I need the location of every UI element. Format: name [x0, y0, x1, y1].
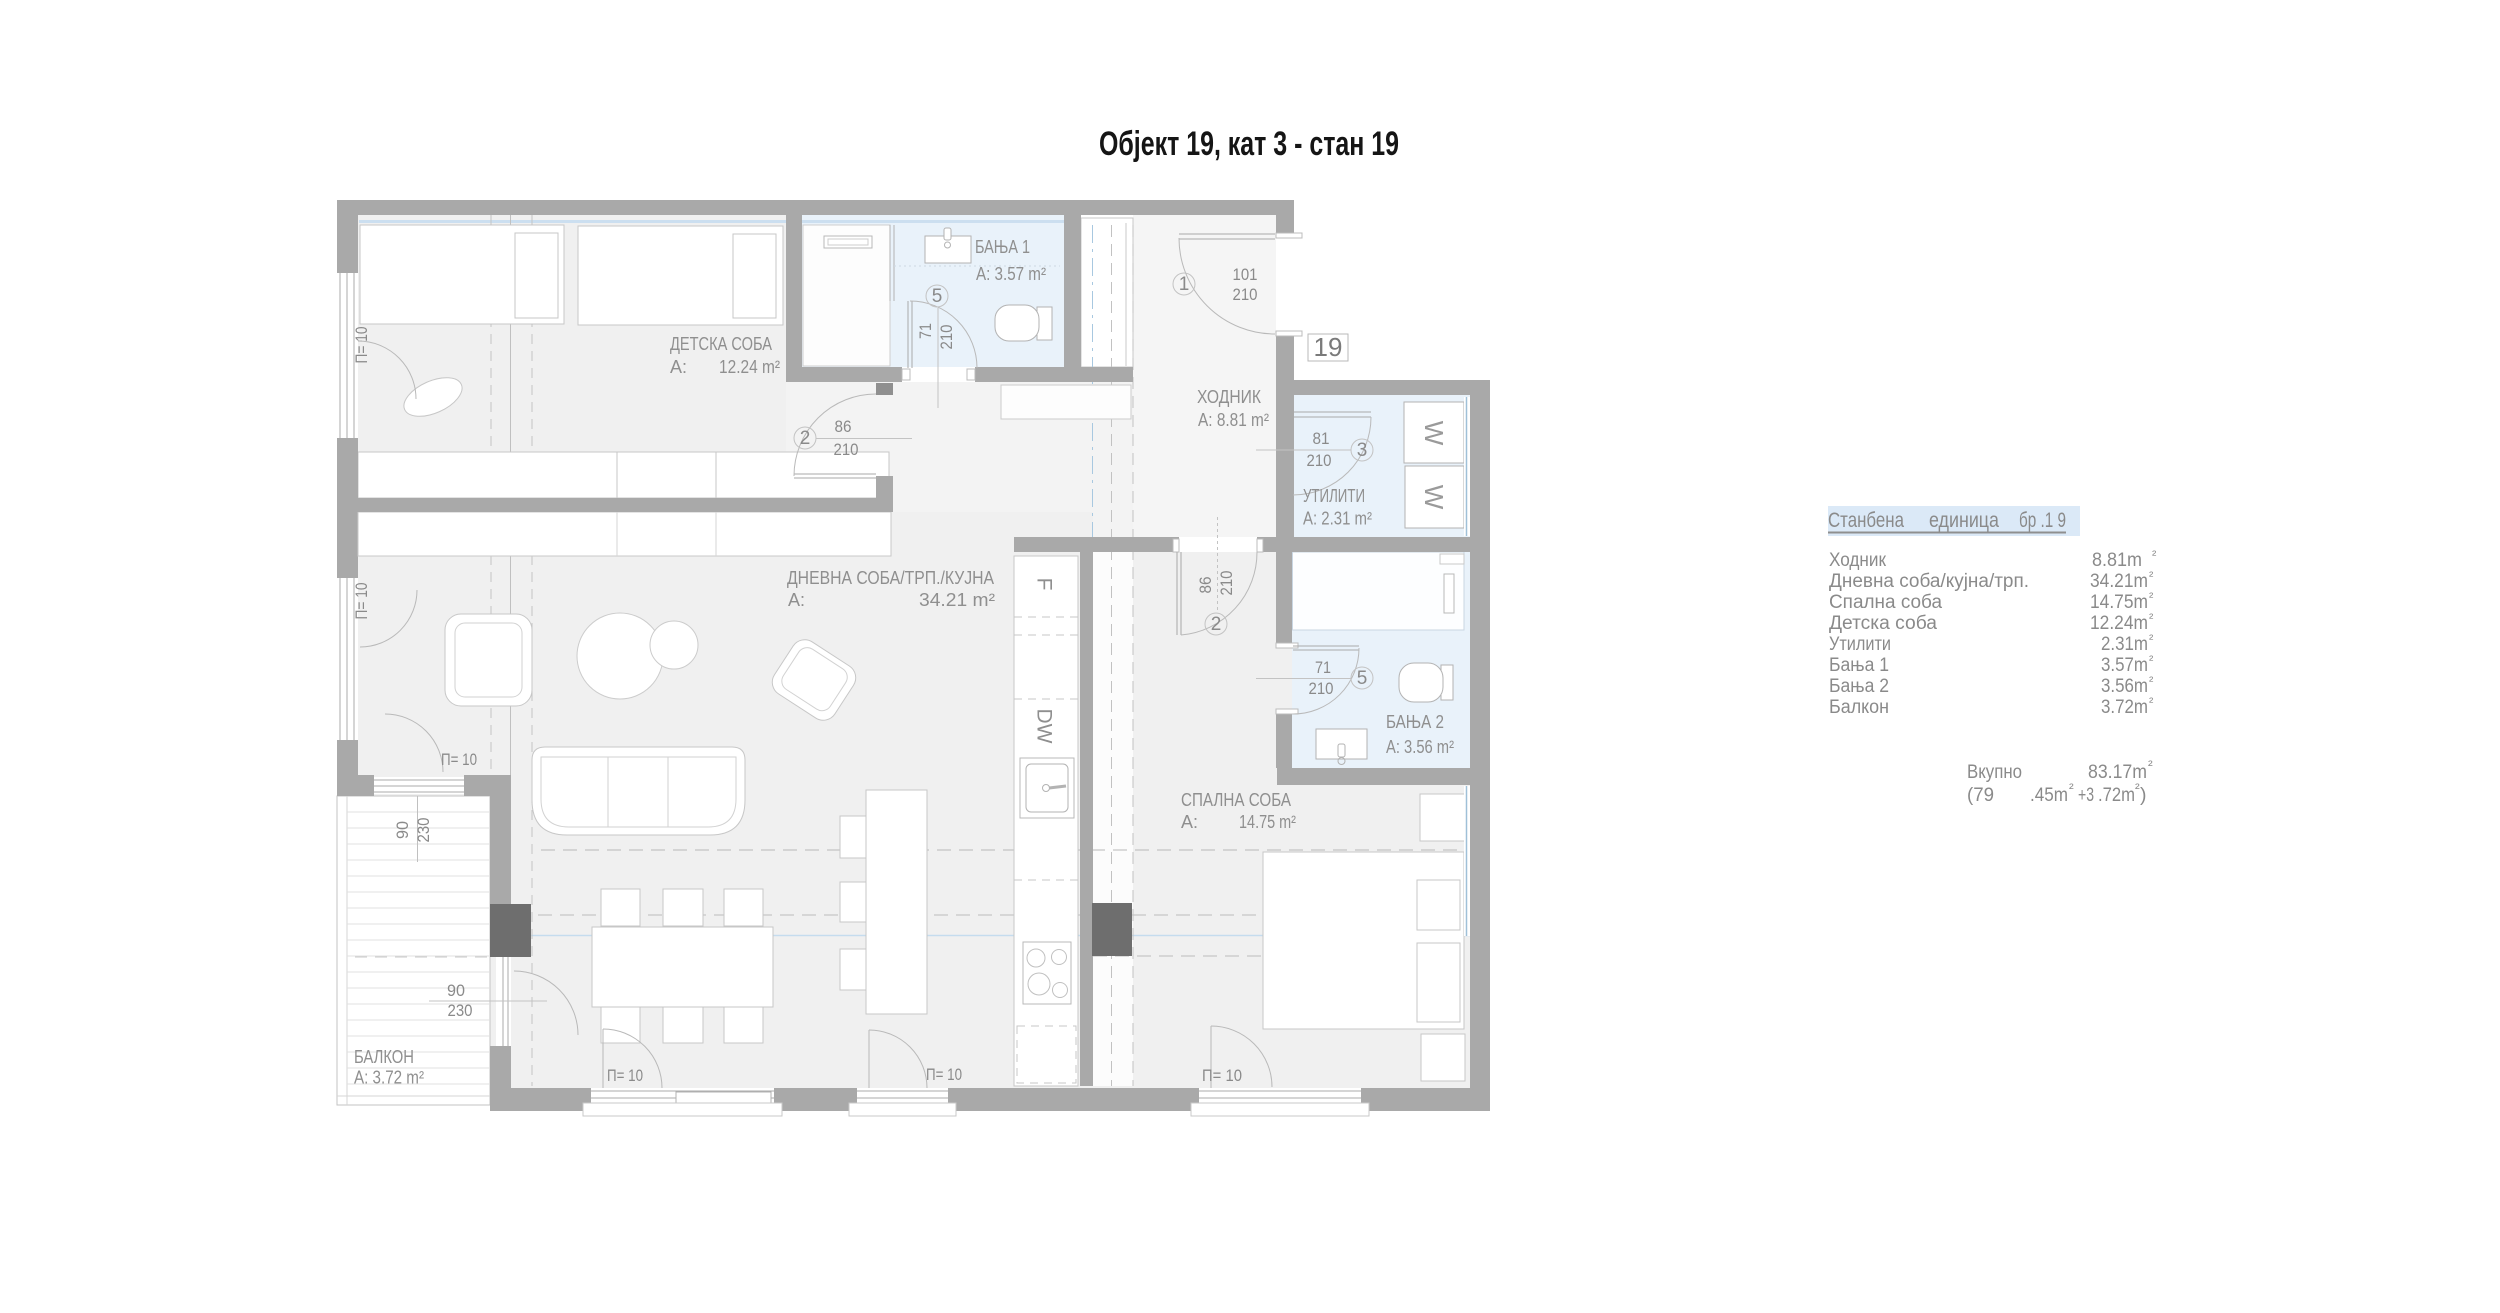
svg-text:12.24 m²: 12.24 m² — [719, 357, 780, 377]
svg-text:(79: (79 — [1967, 784, 1994, 806]
svg-text:Дневна соба/кујна/трп.: Дневна соба/кујна/трп. — [1829, 571, 2029, 592]
svg-text:3.72m: 3.72m — [2101, 697, 2148, 718]
svg-text:8.81m: 8.81m — [2092, 550, 2142, 571]
svg-text:А: 3.56 m²: А: 3.56 m² — [1386, 737, 1454, 757]
svg-text:А: 2.31 m²: А: 2.31 m² — [1303, 509, 1372, 529]
svg-text:71: 71 — [916, 323, 935, 339]
svg-text:12.24m: 12.24m — [2090, 613, 2148, 634]
svg-text:230: 230 — [414, 818, 433, 843]
svg-text:П= 10: П= 10 — [352, 583, 371, 620]
svg-text:): ) — [2140, 784, 2147, 806]
svg-text:34.21m: 34.21m — [2090, 571, 2148, 592]
svg-text:БАЛКОН: БАЛКОН — [354, 1047, 414, 1067]
svg-text:.72m: .72m — [2098, 784, 2135, 806]
svg-text:²: ² — [2149, 610, 2154, 625]
svg-text:СПАЛНА СОБА: СПАЛНА СОБА — [1181, 790, 1291, 810]
svg-text:230: 230 — [448, 1001, 473, 1020]
svg-text:5: 5 — [1357, 668, 1368, 689]
svg-text:П= 10: П= 10 — [441, 750, 477, 769]
svg-text:210: 210 — [834, 440, 859, 459]
svg-text:П= 10: П= 10 — [607, 1066, 643, 1085]
svg-text:ДЕТСКА СОБА: ДЕТСКА СОБА — [670, 334, 772, 354]
svg-text:F: F — [1033, 578, 1056, 591]
svg-text:90: 90 — [393, 821, 412, 839]
svg-text:единица: единица — [1929, 509, 1999, 532]
svg-text:210: 210 — [1307, 451, 1332, 470]
svg-text:Спална соба: Спална соба — [1829, 592, 1942, 613]
svg-text:5: 5 — [932, 286, 943, 307]
svg-text:.45m: .45m — [2030, 784, 2068, 806]
svg-text:14.75m: 14.75m — [2090, 592, 2148, 613]
svg-text:БАЊА 2: БАЊА 2 — [1386, 712, 1444, 732]
svg-text:71: 71 — [1315, 658, 1331, 677]
svg-text:101: 101 — [1233, 265, 1258, 284]
svg-text:W: W — [1419, 485, 1449, 510]
svg-text:+3: +3 — [2078, 784, 2094, 806]
svg-text:БАЊА 1: БАЊА 1 — [975, 237, 1030, 257]
svg-text:²: ² — [2069, 780, 2074, 796]
svg-text:²: ² — [2149, 631, 2154, 646]
svg-text:90: 90 — [447, 981, 465, 1000]
svg-text:А:: А: — [1181, 812, 1198, 832]
svg-text:П= 10: П= 10 — [926, 1065, 962, 1084]
svg-text:3.57m: 3.57m — [2101, 655, 2148, 676]
svg-text:Бања 2: Бања 2 — [1829, 676, 1889, 697]
svg-text:Вкупно: Вкупно — [1967, 761, 2022, 783]
svg-text:210: 210 — [937, 325, 956, 350]
svg-text:34.21 m²: 34.21 m² — [919, 590, 995, 610]
svg-text:210: 210 — [1309, 679, 1334, 698]
svg-text:П= 10: П= 10 — [1202, 1066, 1242, 1085]
svg-text:14.75 m²: 14.75 m² — [1239, 812, 1296, 832]
svg-text:²: ² — [2149, 568, 2154, 583]
svg-text:86: 86 — [1196, 577, 1215, 594]
svg-text:2.31m: 2.31m — [2101, 634, 2148, 655]
svg-text:1: 1 — [1179, 274, 1190, 295]
svg-text:210: 210 — [1233, 285, 1258, 304]
svg-text:Објект 19, кат 3 - стан 19: Објект 19, кат 3 - стан 19 — [1099, 125, 1399, 163]
svg-text:2: 2 — [800, 428, 811, 449]
svg-text:DW: DW — [1033, 709, 1056, 744]
svg-text:²: ² — [2149, 694, 2154, 709]
svg-text:А: 8.81 m²: А: 8.81 m² — [1198, 410, 1269, 430]
svg-text:²: ² — [2149, 589, 2154, 604]
svg-text:бр .1 9: бр .1 9 — [2019, 509, 2066, 532]
svg-text:210: 210 — [1217, 571, 1236, 596]
svg-text:²: ² — [2149, 673, 2154, 688]
svg-text:ДНЕВНА СОБА/ТРП./КУЈНА: ДНЕВНА СОБА/ТРП./КУЈНА — [787, 568, 994, 588]
svg-text:П= 10: П= 10 — [352, 327, 371, 364]
svg-text:81: 81 — [1313, 429, 1330, 448]
svg-text:Ходник: Ходник — [1829, 550, 1887, 571]
svg-text:²: ² — [2149, 652, 2154, 667]
svg-text:19: 19 — [1314, 332, 1343, 362]
svg-text:3.56m: 3.56m — [2101, 676, 2148, 697]
svg-text:А: 3.72 m²: А: 3.72 m² — [354, 1068, 424, 1088]
svg-text:²: ² — [2148, 757, 2153, 773]
svg-text:Детска соба: Детска соба — [1829, 613, 1937, 634]
svg-text:А:: А: — [670, 357, 687, 377]
svg-text:86: 86 — [835, 417, 852, 436]
svg-text:²: ² — [2152, 547, 2157, 562]
svg-text:W: W — [1419, 421, 1449, 446]
svg-text:Бања 1: Бања 1 — [1829, 655, 1889, 676]
svg-text:2: 2 — [1211, 614, 1222, 635]
svg-text:Станбена: Станбена — [1828, 509, 1904, 532]
svg-text:А: 3.57 m²: А: 3.57 m² — [976, 264, 1046, 284]
svg-text:УТИЛИТИ: УТИЛИТИ — [1303, 486, 1365, 506]
svg-text:3: 3 — [1357, 440, 1368, 461]
svg-text:А:: А: — [788, 590, 805, 610]
svg-text:ХОДНИК: ХОДНИК — [1197, 387, 1261, 407]
svg-text:Утилити: Утилити — [1829, 634, 1891, 655]
svg-text:Балкон: Балкон — [1829, 697, 1889, 718]
